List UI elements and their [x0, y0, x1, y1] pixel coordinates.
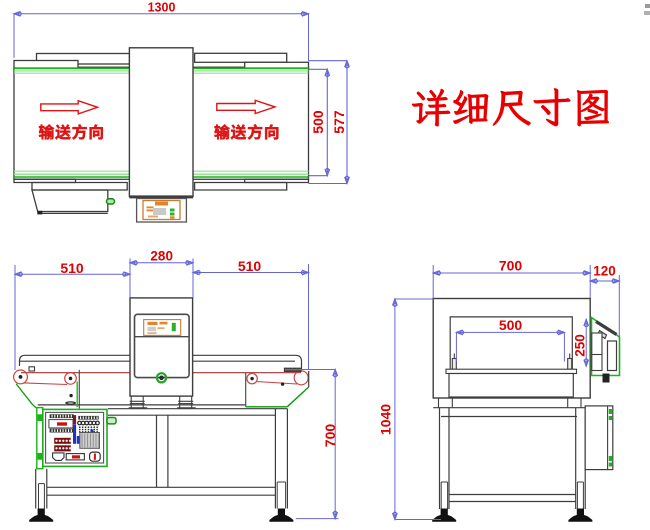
svg-text:500: 500 [310, 110, 326, 134]
svg-text:500: 500 [499, 317, 523, 333]
svg-text:577: 577 [331, 110, 347, 134]
svg-text:1040: 1040 [378, 404, 394, 435]
svg-text:700: 700 [322, 424, 338, 448]
svg-text:510: 510 [238, 258, 262, 274]
svg-text:700: 700 [499, 257, 523, 273]
svg-text:1300: 1300 [148, 1, 176, 15]
svg-text:510: 510 [60, 260, 84, 276]
svg-text:120: 120 [593, 264, 616, 279]
svg-text:280: 280 [150, 248, 173, 263]
svg-text:250: 250 [573, 334, 588, 357]
